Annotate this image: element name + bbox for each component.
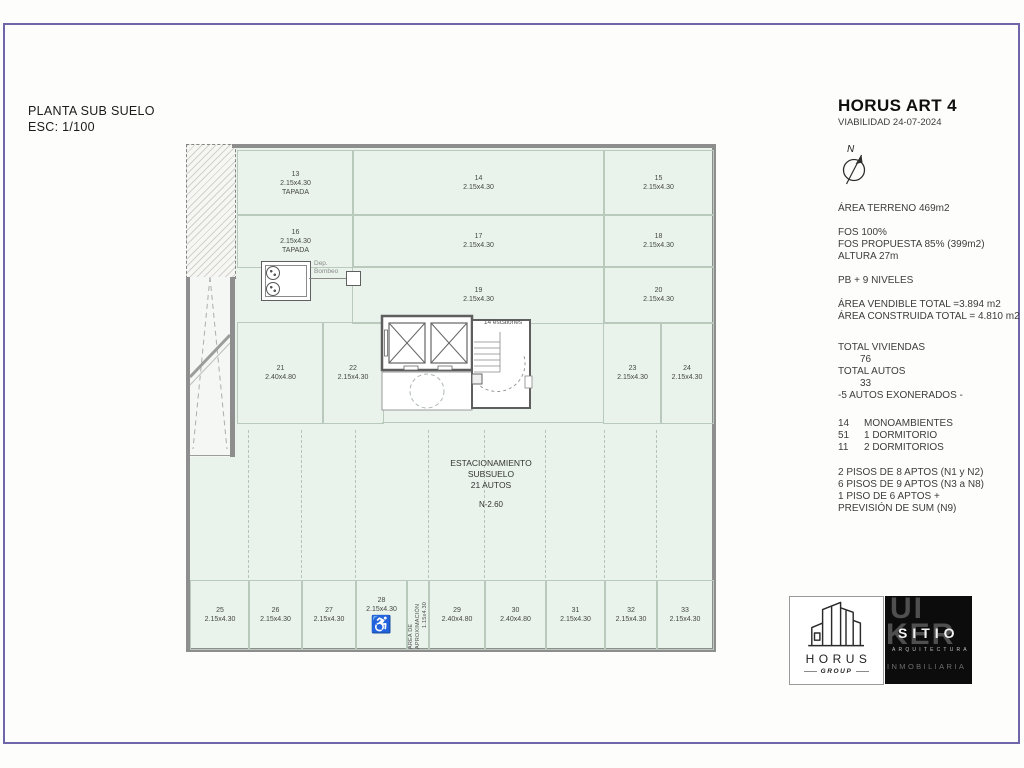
parking-caption: ESTACIONAMIENTO SUBSUELO 21 AUTOS N-2.60 [411,458,571,510]
pump-box-small [346,271,361,286]
units-block: 14MONOAMBIENTES 511 DORMITORIO 112 DORMI… [838,418,1020,454]
horus-logo-text: HORUS [802,652,872,666]
units-row: 511 DORMITORIO [838,430,1020,442]
horus-group-text: GROUP [804,668,870,675]
parking-space-23: 232.15x4.30 [603,322,662,424]
parking-space-15: 152.15x4.30 [603,150,714,216]
pump-circles [262,265,280,297]
guide-line [248,430,249,578]
wall-top [232,144,716,148]
parking-space-25: 252.15x4.30 [190,580,250,650]
sitio-logo-text: SITIO [898,625,960,641]
pump-room-label: Dep. Bombeo [314,260,338,276]
parking-space-28: 282.15x4.30♿ [355,580,408,650]
hatched-void-area [186,144,236,279]
sitio-logo-bottom-text: INMOBILIARIA [887,662,966,671]
pisos-block: 2 PISOS DE 8 APTOS (N1 y N2) 6 PISOS DE … [838,467,1020,515]
parking-space-13: 132.15x4.30TAPADA [237,150,354,216]
drawing-title: PLANTA SUB SUELO ESC: 1/100 [28,103,155,135]
north-arrow: N [838,141,1020,191]
approach-label: ÁREA DE APROXIMACIÓN [408,581,422,649]
units-row: 112 DORMITORIOS [838,442,1020,454]
parking-space-30: 302.40x4.80 [484,580,547,650]
parking-space-17: 172.15x4.30 [352,214,605,268]
areas-block: ÁREA VENDIBLE TOTAL =3.894 m2 ÁREA CONST… [838,299,1020,323]
elevator-stairs-core [376,314,536,414]
north-label: N [847,144,855,155]
wheelchair-icon: ♿ [371,616,392,634]
ramp-wall [230,277,235,457]
parking-space-20: 202.15x4.30 [603,266,714,324]
horus-building-icon [800,597,874,651]
guide-line [355,430,356,578]
parking-space-21: 212.40x4.80 [237,322,324,424]
ramp-lines [190,277,230,457]
guide-line [301,430,302,578]
level-label: N-2.60 [411,499,571,510]
guide-line [604,430,605,578]
info-panel: HORUS ART 4 VIABILIDAD 24-07-2024 N ÁREA… [838,100,1020,515]
sitio-logo-subtext: ARQUITECTURA [892,647,970,653]
parking-space-26: 262.15x4.30 [248,580,303,650]
floor-plan: 132.15x4.30TAPADA142.15x4.30152.15x4.301… [186,144,716,656]
area-terreno: ÁREA TERRENO 469m2 [838,203,1020,215]
fos-block: FOS 100% FOS PROPUESTA 85% (399m2) ALTUR… [838,227,1020,263]
totals-block: TOTAL VIVIENDAS 76 TOTAL AUTOS 33 -5 AUT… [838,342,1020,402]
approach-area: ÁREA DE APROXIMACIÓN 1.15x4.30 [406,580,430,650]
pump-room [261,261,311,301]
ramp-end-line [190,455,230,456]
guide-line [656,430,657,578]
parking-space-32: 322.15x4.30 [604,580,658,650]
units-row: 14MONOAMBIENTES [838,418,1020,430]
stairs-label: 14 escalones [473,319,533,326]
parking-space-14: 142.15x4.30 [352,150,605,216]
driveway-line [382,422,603,423]
sitio-logo: UI KER SITIO ARQUITECTURA INMOBILIARIA [885,596,972,684]
parking-space-24: 242.15x4.30 [660,322,714,424]
niveles: PB + 9 NIVELES [838,275,1020,287]
page: PLANTA SUB SUELO ESC: 1/100 132.15x4.30T… [0,0,1024,768]
parking-space-27: 272.15x4.30 [301,580,357,650]
project-title: HORUS ART 4 [838,100,1020,112]
approach-dims: 1.15x4.30 [422,602,429,628]
drawing-title-line: PLANTA SUB SUELO [28,103,155,119]
parking-space-18: 182.15x4.30 [603,214,714,268]
drawing-scale: ESC: 1/100 [28,119,155,135]
parking-space-31: 312.15x4.30 [545,580,606,650]
parking-space-33: 332.15x4.30 [656,580,714,650]
parking-space-22: 222.15x4.30 [322,322,384,424]
parking-space-29: 292.40x4.80 [428,580,486,650]
horus-group-logo: HORUS GROUP [789,596,884,685]
project-subtitle: VIABILIDAD 24-07-2024 [838,117,1020,129]
pump-connector [309,278,348,279]
